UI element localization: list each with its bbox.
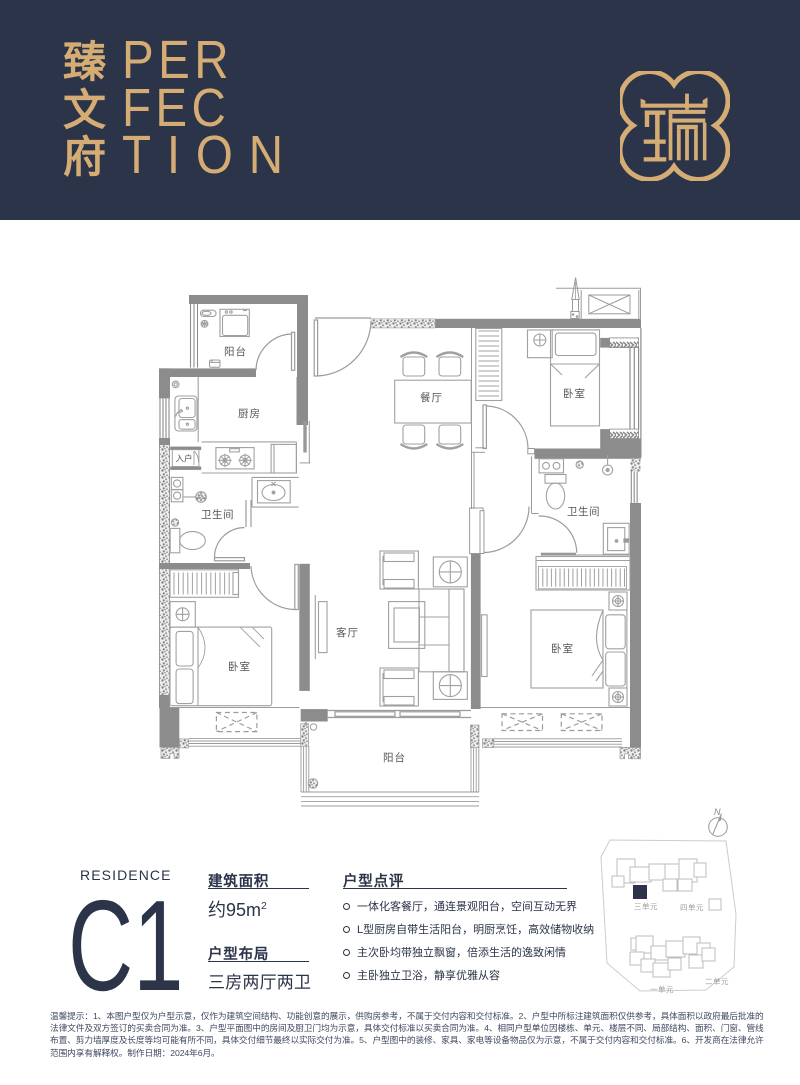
svg-text:卧室: 卧室: [228, 660, 251, 673]
svg-text:阳台: 阳台: [383, 751, 406, 764]
svg-text:厨房: 厨房: [238, 407, 261, 420]
svg-text:N: N: [714, 807, 721, 817]
svg-text:客厅: 客厅: [336, 626, 359, 639]
svg-text:卫生间: 卫生间: [567, 505, 600, 518]
svg-text:入户: 入户: [176, 454, 193, 464]
svg-text:卧室: 卧室: [563, 387, 586, 400]
svg-text:卫生间: 卫生间: [201, 508, 234, 521]
svg-text:一单元: 一单元: [650, 984, 674, 994]
svg-text:二单元: 二单元: [705, 976, 729, 986]
svg-text:四单元: 四单元: [680, 902, 704, 912]
svg-text:阳台: 阳台: [224, 345, 247, 358]
svg-text:卧室: 卧室: [551, 642, 574, 655]
svg-text:餐厅: 餐厅: [420, 391, 443, 404]
